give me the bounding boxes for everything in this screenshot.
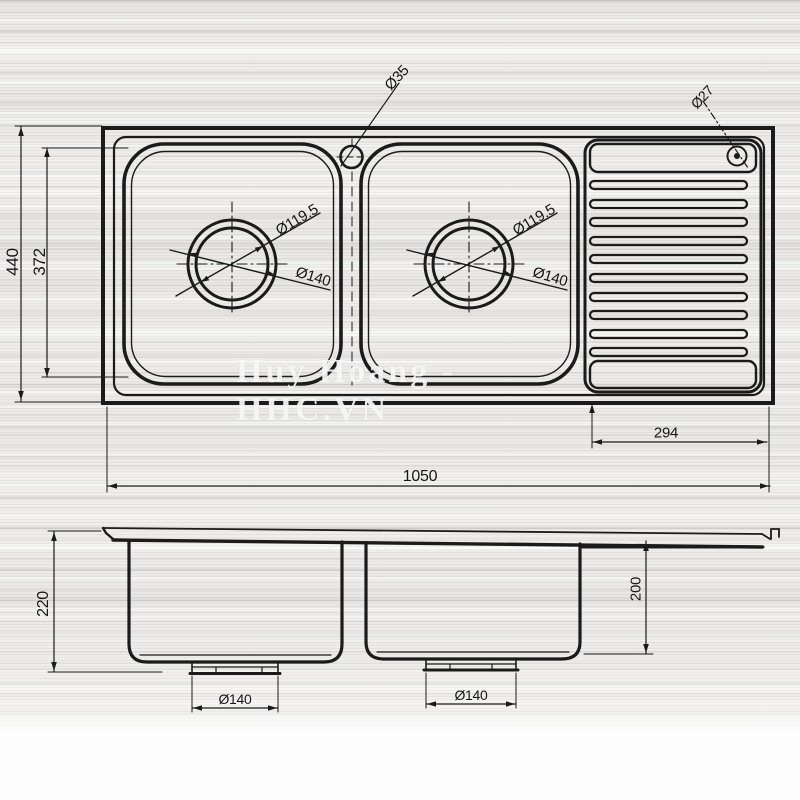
bowl-2-plan	[361, 144, 578, 384]
drain2-dia-label: Ø140	[454, 687, 487, 703]
sink-technical-drawing: 440 372 1050 294 Ø35 Ø27 Ø119.5 Ø140 Ø11…	[0, 0, 800, 800]
drain1-dia-label: Ø140	[218, 691, 251, 707]
dim-overall-depth-label: 440	[3, 248, 23, 275]
dim-basin-depth-label: 372	[30, 248, 50, 275]
dim-overall-height-220	[48, 531, 162, 672]
drain-fitting-2	[424, 659, 518, 670]
dim-overall-height-label: 220	[35, 591, 53, 617]
watermark-text: Huy Hoang - HHC.VN	[236, 353, 612, 429]
dim-drainboard-width-294	[589, 404, 767, 448]
front-view-profile	[103, 528, 779, 674]
dim-overall-depth-440	[15, 126, 102, 402]
drainboard-ribs	[590, 181, 747, 356]
dim-drainboard-width-label: 294	[654, 425, 678, 442]
dim-bowl-depth-label: 200	[628, 577, 645, 601]
dim-overall-width-label: 1050	[403, 468, 437, 486]
overflow-hole	[703, 101, 748, 168]
bowl-1-plan	[124, 144, 341, 384]
drain-fitting-1	[190, 662, 280, 674]
